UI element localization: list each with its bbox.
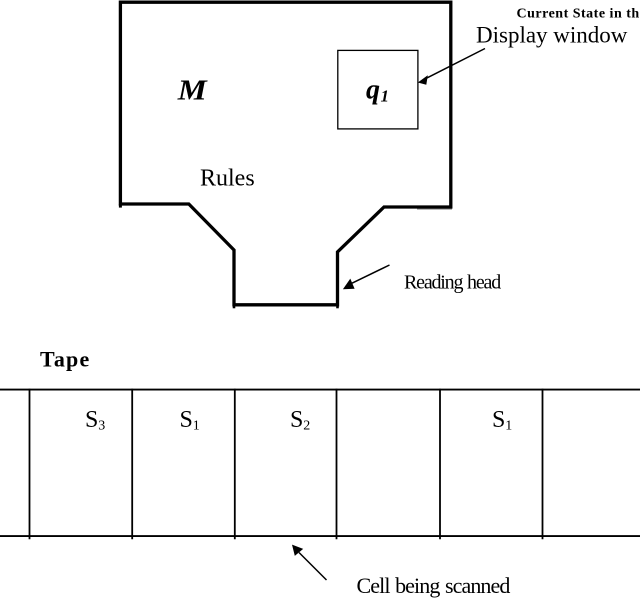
- svg-text:1: 1: [505, 419, 512, 434]
- svg-text:Current State in the: Current State in the: [517, 6, 640, 21]
- svg-text:S: S: [290, 407, 303, 433]
- svg-text:M: M: [177, 75, 209, 106]
- svg-text:1: 1: [381, 87, 390, 106]
- svg-text:2: 2: [303, 419, 310, 434]
- svg-text:Tape: Tape: [40, 346, 90, 371]
- svg-text:S: S: [85, 407, 98, 433]
- svg-text:1: 1: [193, 419, 200, 434]
- svg-text:S: S: [180, 407, 193, 433]
- svg-text:3: 3: [98, 419, 105, 434]
- svg-text:Reading head: Reading head: [404, 272, 501, 294]
- svg-text:q: q: [366, 75, 380, 106]
- svg-text:Rules: Rules: [200, 165, 255, 191]
- svg-text:Display window: Display window: [476, 22, 628, 47]
- svg-text:Cell being scanned: Cell being scanned: [357, 573, 511, 598]
- svg-text:S: S: [492, 407, 505, 433]
